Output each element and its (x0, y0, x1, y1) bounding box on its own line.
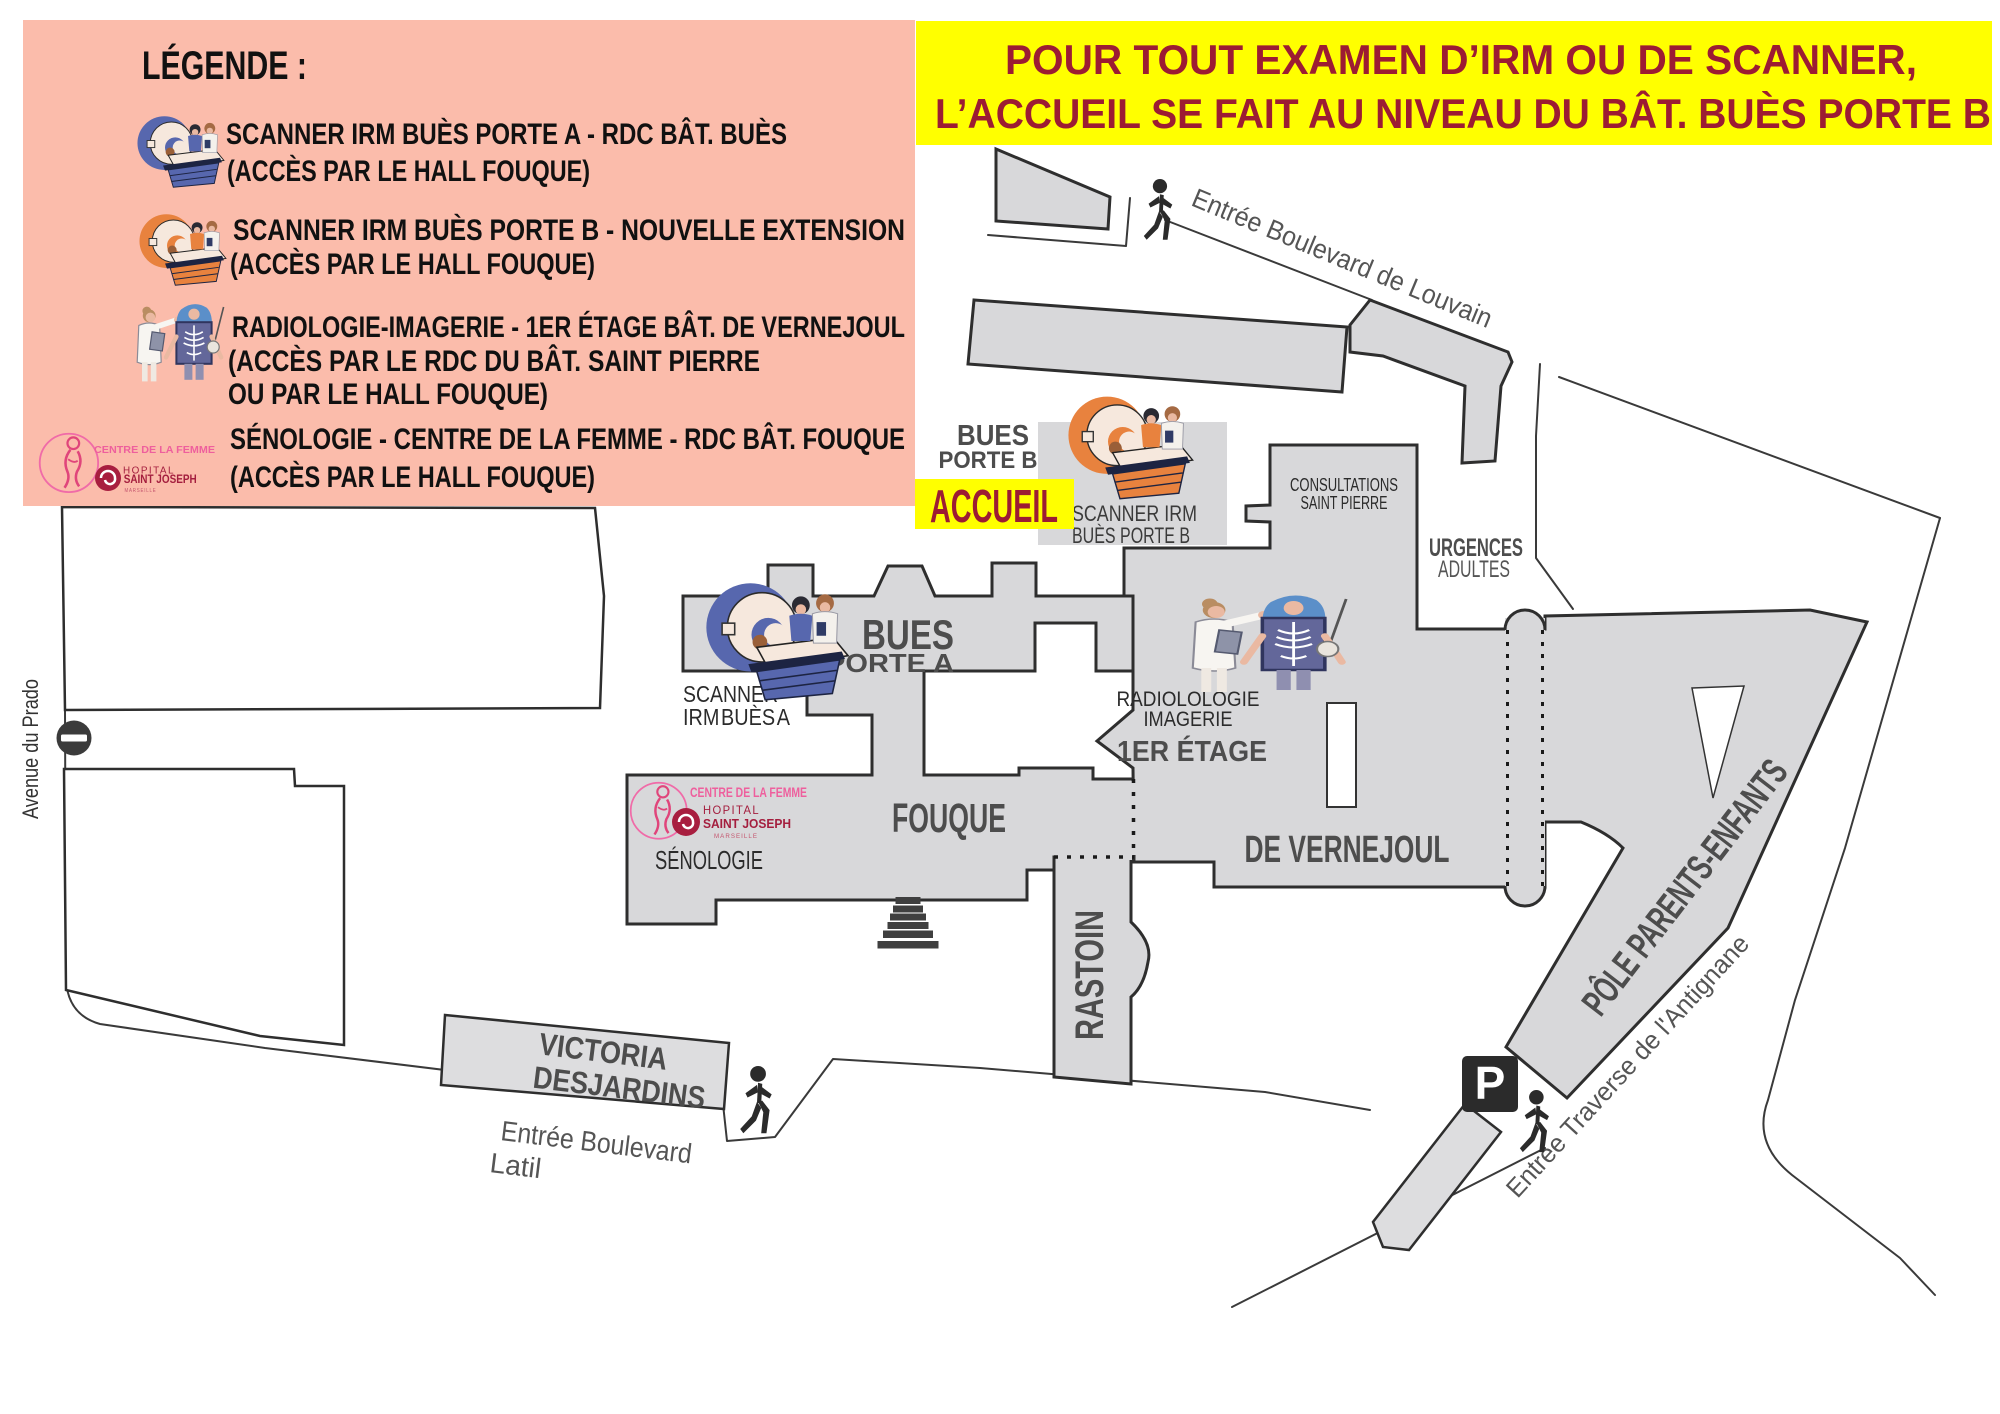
svg-text:(ACCÈS PAR LE HALL FOUQUE): (ACCÈS PAR LE HALL FOUQUE) (230, 460, 595, 494)
svg-text:LÉGENDE :: LÉGENDE : (142, 43, 307, 88)
svg-text:ADULTES: ADULTES (1438, 556, 1510, 583)
svg-text:SÉNOLOGIE - CENTRE DE LA FEMME: SÉNOLOGIE - CENTRE DE LA FEMME - RDC BÂT… (230, 422, 905, 456)
svg-text:IRM BUÈS A: IRM BUÈS A (683, 704, 791, 730)
svg-text:SÉNOLOGIE: SÉNOLOGIE (655, 845, 763, 875)
svg-text:P: P (1475, 1057, 1506, 1109)
svg-text:CENTRE DE LA FEMME: CENTRE DE LA FEMME (94, 444, 215, 456)
svg-text:SAINT PIERRE: SAINT PIERRE (1301, 492, 1388, 513)
svg-text:L’ACCUEIL SE FAIT AU NIVEAU DU: L’ACCUEIL SE FAIT AU NIVEAU DU BÂT. BUÈS… (935, 89, 1991, 137)
svg-text:FOUQUE: FOUQUE (892, 795, 1006, 841)
svg-text:Avenue du Prado: Avenue du Prado (18, 679, 43, 819)
svg-text:DE VERNEJOUL: DE VERNEJOUL (1245, 829, 1450, 871)
svg-text:Latil: Latil (488, 1147, 543, 1184)
svg-text:SCANNER IRM BUÈS PORTE A - RDC: SCANNER IRM BUÈS PORTE A - RDC BÂT. BUÈS (226, 117, 787, 151)
svg-text:CENTRE DE LA FEMME: CENTRE DE LA FEMME (690, 785, 807, 800)
svg-text:SAINT JOSEPH: SAINT JOSEPH (124, 474, 197, 486)
svg-text:PORTE B: PORTE B (939, 447, 1038, 474)
svg-text:ACCUEIL: ACCUEIL (930, 480, 1058, 532)
svg-text:POUR TOUT EXAMEN D’IRM OU DE S: POUR TOUT EXAMEN D’IRM OU DE SCANNER, (1005, 36, 1917, 83)
svg-text:SAINT JOSEPH: SAINT JOSEPH (703, 816, 791, 831)
svg-text:(ACCÈS PAR LE HALL FOUQUE): (ACCÈS PAR LE HALL FOUQUE) (227, 154, 590, 188)
svg-text:1ER ÉTAGE: 1ER ÉTAGE (1117, 734, 1267, 768)
svg-text:HOPITAL: HOPITAL (703, 803, 760, 817)
svg-text:MARSEILLE: MARSEILLE (125, 488, 157, 494)
svg-text:IMAGERIE: IMAGERIE (1144, 708, 1233, 731)
svg-text:BUÈS PORTE B: BUÈS PORTE B (1072, 523, 1190, 548)
svg-text:SCANNER IRM BUÈS PORTE B - NO: SCANNER IRM BUÈS PORTE B - NOUVELLE EXTE… (233, 213, 905, 247)
svg-text:(ACCÈS PAR LE RDC DU BÂT. SAIN: (ACCÈS PAR LE RDC DU BÂT. SAINT PIERRE (228, 344, 760, 378)
svg-text:RADIOLOGIE-IMAGERIE - 1ER ÉTAG: RADIOLOGIE-IMAGERIE - 1ER ÉTAGE BÂT. DE … (232, 310, 905, 344)
svg-text:MARSEILLE: MARSEILLE (714, 834, 758, 840)
svg-text:(ACCÈS PAR LE HALL FOUQUE): (ACCÈS PAR LE HALL FOUQUE) (230, 247, 595, 281)
svg-text:RASTOIN: RASTOIN (1068, 910, 1112, 1040)
svg-text:OU PAR LE HALL FOUQUE): OU PAR LE HALL FOUQUE) (228, 378, 548, 411)
